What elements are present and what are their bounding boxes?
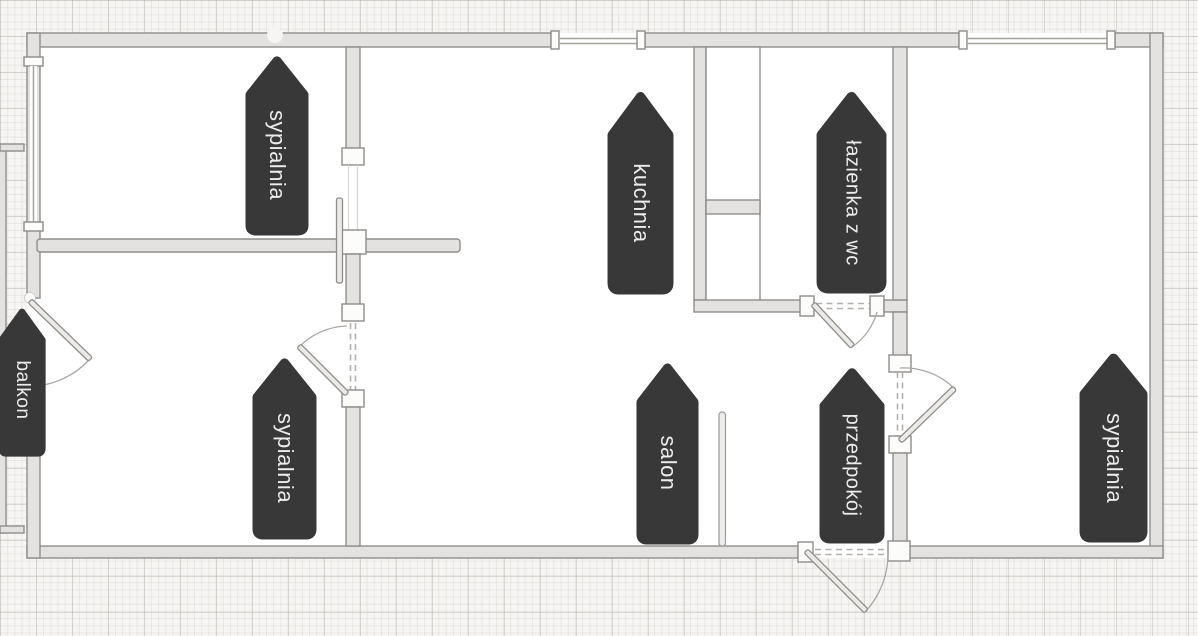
room-label: kuchnia [628,164,654,243]
floor-plan-drawing[interactable] [0,0,1198,636]
room-label: salon [655,436,681,491]
room-tag-sypialnia-bottom-left[interactable]: sypialnia [252,354,317,540]
duct-shaft[interactable] [694,47,760,305]
apartment-interior [27,33,1163,558]
room-tag-balkon[interactable]: balkon [0,305,46,457]
wall-left-bedrooms-divider[interactable] [37,239,460,252]
room-tag-sypialnia-right[interactable]: sypialnia [1079,349,1148,543]
room-tag-salon[interactable]: salon [636,359,699,545]
room-tag-przedpokoj[interactable]: przedpokój [819,364,885,544]
wall-notch-marker [267,27,283,43]
room-tag-sypialnia-top-left[interactable]: sypialnia [245,52,309,236]
room-label: sypialnia [1101,413,1127,503]
wall-salon-partition[interactable] [719,412,726,546]
room-label: sypialnia [264,110,290,200]
room-label: łazienka z wc [840,140,863,265]
room-tag-lazienka[interactable]: łazienka z wc [816,87,887,294]
door-leaf-top-bedroom[interactable] [337,198,343,283]
floor-plan-canvas[interactable]: sypialnia kuchnia łazienka z wc balkon s… [0,0,1198,636]
room-label: sypialnia [272,413,298,503]
room-tag-kuchnia[interactable]: kuchnia [607,87,674,295]
room-label: przedpokój [841,413,864,516]
room-label: balkon [11,361,33,420]
